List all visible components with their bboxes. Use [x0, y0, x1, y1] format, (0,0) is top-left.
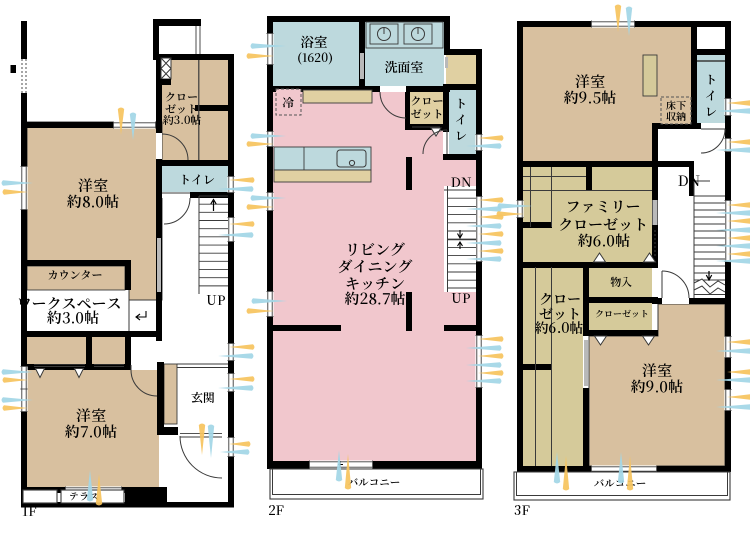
svg-text:UP: UP [451, 288, 471, 307]
svg-text:物入: 物入 [610, 274, 632, 290]
svg-text:カウンター: カウンター [48, 267, 103, 283]
svg-text:約9.0帖: 約9.0帖 [631, 376, 683, 397]
svg-text:DN: DN [451, 172, 472, 191]
svg-text:約6.0帖: 約6.0帖 [578, 230, 630, 251]
svg-text:イ: イ [705, 87, 717, 104]
svg-text:(1620): (1620) [297, 49, 333, 66]
svg-text:冷: 冷 [282, 94, 295, 111]
svg-text:1F: 1F [22, 501, 36, 520]
svg-text:玄関: 玄関 [191, 389, 215, 406]
svg-text:レ: レ [705, 103, 717, 120]
svg-text:ト: ト [455, 95, 467, 112]
svg-text:約9.5帖: 約9.5帖 [564, 87, 616, 108]
svg-text:レ: レ [455, 127, 467, 144]
svg-text:浴室: 浴室 [301, 31, 328, 51]
svg-text:ゼット: ゼット [411, 106, 444, 122]
svg-text:UP: UP [206, 290, 226, 309]
svg-text:3F: 3F [514, 500, 530, 519]
svg-text:クローゼット: クローゼット [595, 307, 649, 320]
svg-text:ト: ト [705, 71, 717, 88]
svg-text:約3.0帖: 約3.0帖 [163, 112, 202, 128]
svg-text:約6.0帖: 約6.0帖 [535, 318, 584, 338]
svg-text:バルコニー: バルコニー [348, 475, 401, 490]
svg-text:トイレ: トイレ [179, 171, 215, 188]
svg-text:約8.0帖: 約8.0帖 [67, 191, 119, 212]
svg-text:約28.7帖: 約28.7帖 [345, 288, 406, 309]
svg-text:収納: 収納 [666, 108, 686, 123]
svg-text:2F: 2F [268, 500, 284, 519]
svg-text:イ: イ [455, 111, 467, 128]
svg-text:洗面室: 洗面室 [384, 57, 423, 76]
svg-text:テラス: テラス [69, 488, 99, 503]
svg-text:約7.0帖: 約7.0帖 [65, 421, 117, 442]
svg-text:DN: DN [678, 171, 701, 191]
svg-text:約3.0帖: 約3.0帖 [47, 307, 99, 328]
